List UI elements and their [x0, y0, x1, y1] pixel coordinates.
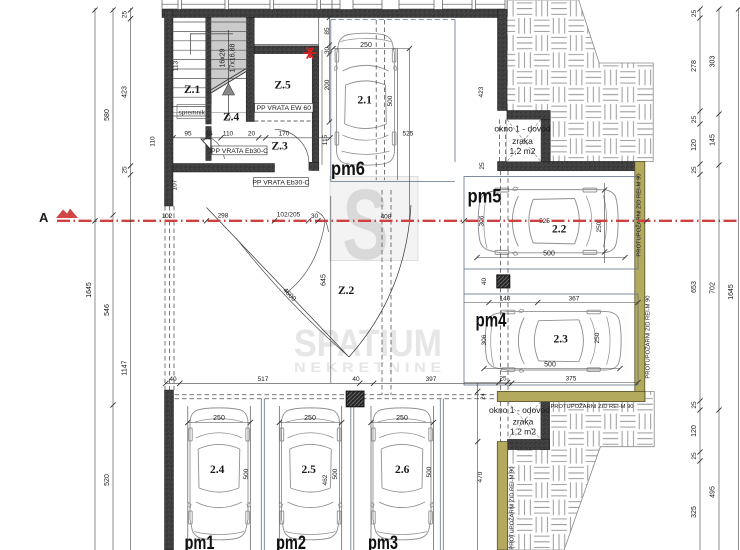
- svg-text:250: 250: [360, 42, 372, 49]
- svg-text:702: 702: [710, 282, 717, 294]
- svg-text:PROTUPOŽARNI ZID REI-M 90: PROTUPOŽARNI ZID REI-M 90: [644, 295, 652, 378]
- svg-text:okno 1 - dovod: okno 1 - dovod: [494, 124, 551, 134]
- svg-text:500: 500: [387, 95, 394, 106]
- svg-text:25: 25: [122, 11, 129, 19]
- svg-text:250: 250: [396, 415, 408, 422]
- svg-text:SPATIUM: SPATIUM: [294, 323, 442, 365]
- svg-text:95: 95: [184, 131, 192, 138]
- svg-text:pm1: pm1: [185, 532, 215, 550]
- svg-text:30: 30: [311, 213, 319, 220]
- svg-text:Z.3: Z.3: [272, 141, 289, 153]
- svg-text:520: 520: [104, 474, 111, 486]
- svg-text:375: 375: [566, 375, 577, 382]
- svg-text:pm5: pm5: [468, 186, 502, 208]
- svg-text:1147: 1147: [122, 360, 129, 375]
- svg-text:pm4: pm4: [476, 310, 507, 332]
- svg-text:200: 200: [324, 79, 331, 90]
- svg-text:500: 500: [544, 362, 556, 369]
- svg-text:24: 24: [481, 393, 487, 400]
- svg-text:PROTUPOŽARNI ZID REI-M 90: PROTUPOŽARNI ZID REI-M 90: [508, 466, 516, 549]
- svg-text:25: 25: [691, 452, 698, 460]
- svg-text:303: 303: [710, 56, 717, 68]
- svg-text:140: 140: [500, 296, 511, 303]
- svg-text:20: 20: [248, 131, 256, 138]
- svg-text:170: 170: [279, 131, 290, 138]
- svg-text:120: 120: [691, 139, 698, 151]
- svg-text:S: S: [343, 169, 389, 281]
- svg-text:45: 45: [205, 131, 213, 138]
- svg-text:16x29: 16x29: [220, 48, 227, 67]
- svg-text:298: 298: [218, 213, 229, 220]
- svg-text:A: A: [39, 210, 49, 225]
- svg-text:525: 525: [402, 131, 413, 138]
- svg-text:25: 25: [691, 166, 698, 174]
- svg-text:1,2 m2: 1,2 m2: [510, 146, 536, 156]
- svg-text:2.5: 2.5: [302, 464, 317, 476]
- svg-text:PROTUPOŽARNI ZID REI-M 90: PROTUPOŽARNI ZID REI-M 90: [550, 402, 633, 410]
- svg-text:110: 110: [223, 131, 234, 138]
- svg-text:Z.5: Z.5: [275, 80, 292, 92]
- svg-text:500: 500: [543, 251, 555, 258]
- svg-text:Z.2: Z.2: [338, 285, 355, 297]
- svg-text:PROTUPOŽARNI ZID REI-M 90: PROTUPOŽARNI ZID REI-M 90: [635, 173, 643, 256]
- svg-text:pm6: pm6: [331, 158, 365, 180]
- svg-text:1,2 m2: 1,2 m2: [510, 427, 536, 437]
- svg-text:653: 653: [691, 281, 698, 293]
- svg-text:408: 408: [381, 214, 392, 221]
- svg-text:25: 25: [691, 10, 698, 18]
- svg-text:1645: 1645: [728, 284, 735, 300]
- svg-text:NEKRETNINE: NEKRETNINE: [294, 360, 446, 375]
- svg-text:102/205: 102/205: [277, 212, 301, 219]
- svg-text:40: 40: [481, 278, 488, 286]
- svg-text:2.4: 2.4: [210, 464, 225, 476]
- svg-text:25: 25: [691, 401, 698, 409]
- svg-text:500: 500: [426, 466, 433, 477]
- svg-text:2.2: 2.2: [552, 224, 567, 236]
- svg-text:PP VRATA EW 60: PP VRATA EW 60: [257, 105, 312, 112]
- svg-text:25: 25: [122, 166, 129, 174]
- svg-text:pm2: pm2: [276, 532, 306, 550]
- svg-text:107: 107: [172, 179, 179, 190]
- svg-text:30: 30: [324, 47, 331, 55]
- svg-text:4600: 4600: [281, 287, 297, 303]
- svg-text:397: 397: [426, 376, 437, 383]
- svg-text:145: 145: [710, 134, 717, 146]
- svg-text:470: 470: [477, 471, 484, 482]
- svg-text:580: 580: [104, 109, 111, 121]
- svg-text:85: 85: [324, 27, 331, 35]
- svg-text:40: 40: [169, 376, 177, 383]
- svg-text:40: 40: [352, 376, 360, 383]
- svg-text:645: 645: [321, 274, 328, 286]
- svg-text:495: 495: [710, 486, 717, 498]
- svg-text:500: 500: [332, 468, 339, 479]
- svg-text:110: 110: [150, 136, 157, 147]
- svg-text:25: 25: [479, 162, 486, 170]
- svg-text:25: 25: [499, 375, 507, 382]
- svg-text:462: 462: [322, 474, 329, 485]
- svg-text:okno 1 - odovod: okno 1 - odovod: [489, 405, 550, 415]
- svg-text:306: 306: [481, 334, 488, 345]
- svg-text:423: 423: [478, 86, 485, 97]
- svg-text:120: 120: [691, 425, 698, 437]
- svg-text:423: 423: [122, 86, 129, 98]
- svg-text:Z.1: Z.1: [184, 84, 201, 96]
- svg-text:102: 102: [162, 213, 173, 220]
- svg-text:zraka: zraka: [512, 136, 533, 146]
- svg-text:Z.4: Z.4: [223, 111, 240, 123]
- svg-text:2.3: 2.3: [554, 334, 569, 346]
- svg-text:zraka: zraka: [513, 417, 534, 427]
- svg-text:PP VRATA Eb30-C: PP VRATA Eb30-C: [252, 179, 309, 186]
- svg-text:pm3: pm3: [368, 532, 398, 550]
- svg-text:250: 250: [596, 221, 603, 232]
- svg-text:546: 546: [104, 304, 111, 316]
- svg-text:250: 250: [594, 332, 601, 343]
- svg-text:spremnik: spremnik: [179, 110, 206, 117]
- svg-text:25: 25: [691, 116, 698, 124]
- svg-text:278: 278: [691, 60, 698, 72]
- svg-text:250: 250: [304, 415, 316, 422]
- svg-text:17x16,88: 17x16,88: [230, 43, 237, 72]
- svg-text:2.1: 2.1: [358, 95, 373, 107]
- svg-text:500: 500: [243, 468, 250, 479]
- svg-text:PP VRATA Eb30-C: PP VRATA Eb30-C: [211, 148, 268, 155]
- svg-text:517: 517: [258, 376, 269, 383]
- svg-text:1645: 1645: [86, 282, 93, 298]
- svg-text:325: 325: [691, 506, 698, 518]
- svg-text:367: 367: [569, 296, 580, 303]
- svg-text:113: 113: [173, 60, 180, 71]
- svg-text:2.6: 2.6: [395, 464, 410, 476]
- svg-text:250: 250: [213, 415, 225, 422]
